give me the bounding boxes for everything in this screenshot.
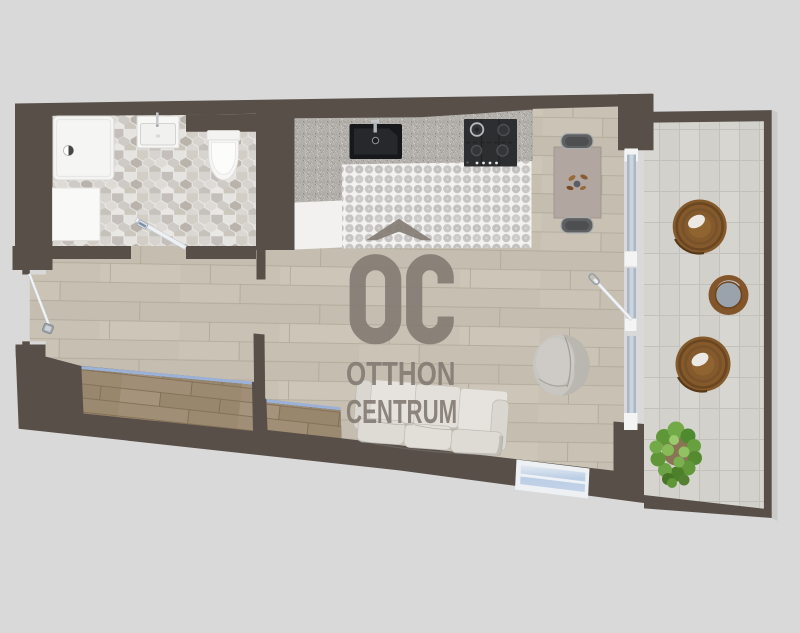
svg-text:CENTRUM: CENTRUM — [346, 393, 457, 430]
svg-text:OTTHON: OTTHON — [346, 355, 456, 392]
